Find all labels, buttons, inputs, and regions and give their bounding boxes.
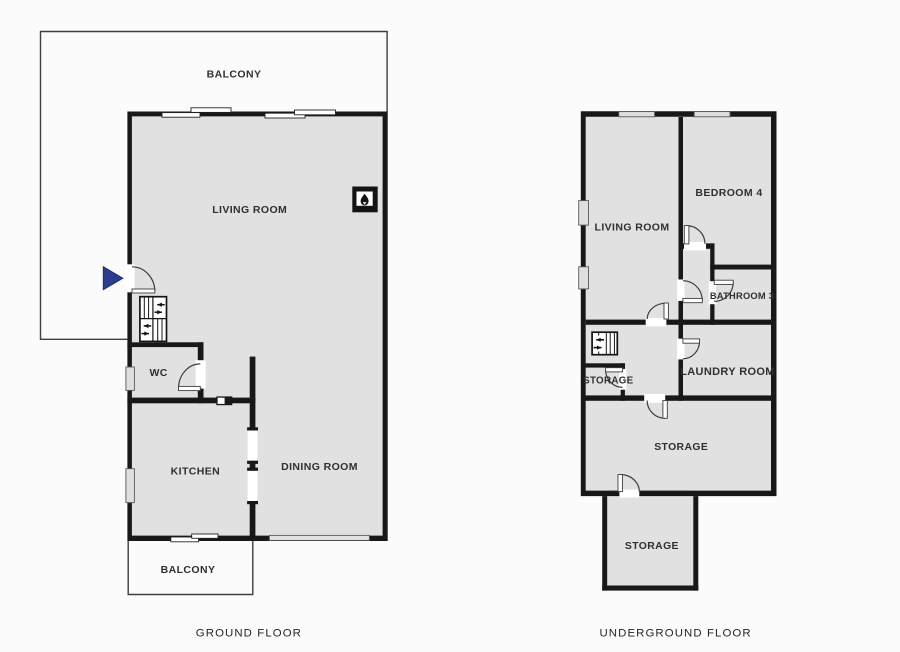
svg-text:GROUND FLOOR: GROUND FLOOR — [196, 628, 302, 640]
svg-text:LIVING ROOM: LIVING ROOM — [212, 204, 287, 216]
svg-text:STORAGE: STORAGE — [583, 375, 634, 386]
svg-text:STORAGE: STORAGE — [625, 541, 679, 552]
svg-text:BEDROOM 4: BEDROOM 4 — [695, 187, 762, 199]
svg-text:UNDERGROUND FLOOR: UNDERGROUND FLOOR — [599, 628, 751, 640]
svg-text:WC: WC — [149, 367, 167, 379]
svg-text:KITCHEN: KITCHEN — [171, 465, 220, 477]
svg-text:BALCONY: BALCONY — [207, 69, 262, 81]
svg-text:STORAGE: STORAGE — [654, 442, 708, 453]
svg-text:LIVING ROOM: LIVING ROOM — [595, 221, 670, 233]
svg-text:LAUNDRY ROOM: LAUNDRY ROOM — [680, 366, 775, 378]
svg-text:BATHROOM 3: BATHROOM 3 — [710, 291, 774, 301]
svg-text:BALCONY: BALCONY — [161, 564, 216, 576]
svg-text:DINING ROOM: DINING ROOM — [281, 461, 358, 473]
